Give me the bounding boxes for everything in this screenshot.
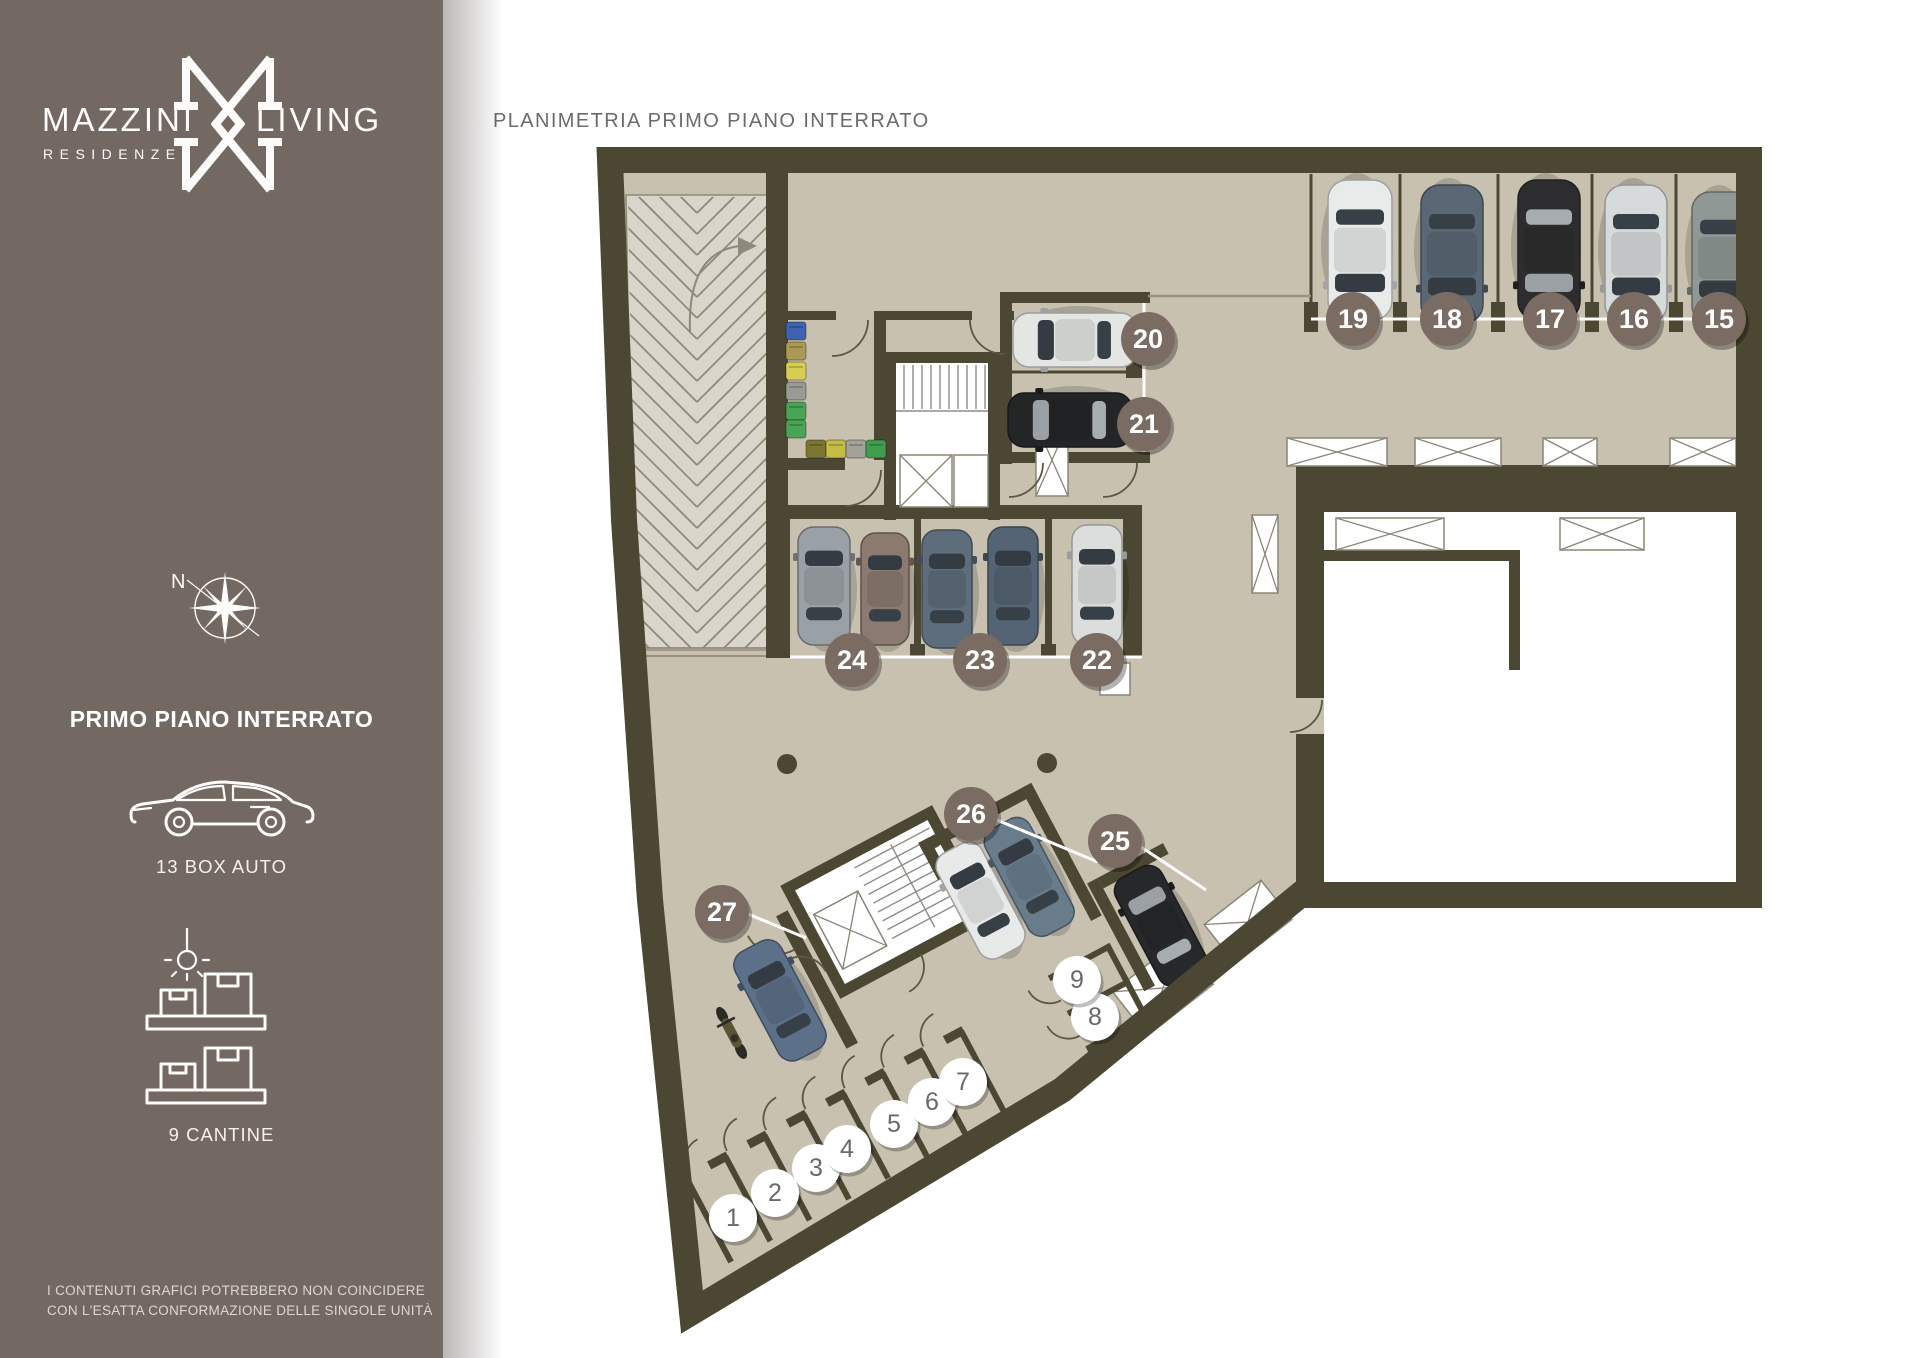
- svg-text:21: 21: [1129, 409, 1159, 439]
- car-icon: [856, 533, 916, 652]
- svg-text:15: 15: [1704, 304, 1734, 334]
- svg-text:16: 16: [1619, 304, 1649, 334]
- waste-bin-icon: [786, 402, 806, 420]
- car-icon: [793, 527, 857, 652]
- cellar-shelf-icon: [131, 928, 311, 1124]
- svg-text:24: 24: [837, 645, 867, 675]
- page-title: PLANIMETRIA PRIMO PIANO INTERRATO: [493, 110, 930, 133]
- floor-title: PRIMO PIANO INTERRATO: [0, 706, 443, 733]
- car-icon: [121, 760, 321, 850]
- svg-text:18: 18: [1432, 304, 1462, 334]
- column: [777, 754, 797, 774]
- svg-text:17: 17: [1535, 304, 1565, 334]
- car-icon: [983, 527, 1045, 652]
- disclaimer: I CONTENUTI GRAFICI POTREBBERO NON COINC…: [47, 1281, 433, 1321]
- svg-text:23: 23: [965, 645, 995, 675]
- car-icon: [1067, 525, 1129, 652]
- cantine-count: 9 CANTINE: [0, 1124, 443, 1146]
- waste-bin-icon: [786, 342, 806, 360]
- svg-text:6: 6: [925, 1088, 939, 1116]
- sidebar-shadow: [443, 0, 503, 1358]
- svg-text:1: 1: [726, 1204, 740, 1232]
- waste-bin-icon: [806, 440, 826, 458]
- svg-text:27: 27: [707, 897, 737, 927]
- svg-text:20: 20: [1133, 324, 1163, 354]
- logo-subtitle: RESIDENZE: [43, 146, 182, 162]
- waste-bin-icon: [866, 440, 886, 458]
- waste-bin-icon: [786, 322, 806, 340]
- svg-text:22: 22: [1082, 645, 1112, 675]
- svg-text:7: 7: [956, 1068, 970, 1096]
- svg-text:5: 5: [887, 1110, 901, 1138]
- compass-icon: N: [163, 558, 283, 653]
- waste-bin-icon: [786, 420, 806, 438]
- waste-bin-icon: [826, 440, 846, 458]
- waste-bin-icon: [846, 440, 866, 458]
- column: [1037, 753, 1057, 773]
- svg-text:8: 8: [1088, 1003, 1102, 1031]
- waste-bin-icon: [786, 362, 806, 380]
- svg-text:9: 9: [1070, 966, 1084, 994]
- svg-text:3: 3: [809, 1154, 823, 1182]
- page: 15161718192021222324252627123456789 MAZZ…: [0, 0, 1920, 1358]
- waste-bin-icon: [786, 382, 806, 400]
- svg-text:25: 25: [1100, 826, 1130, 856]
- svg-text:19: 19: [1338, 304, 1368, 334]
- compass-n-label: N: [171, 571, 185, 593]
- svg-text:2: 2: [768, 1179, 782, 1207]
- mazzini-monogram-icon: [172, 44, 284, 204]
- svg-text:26: 26: [956, 799, 986, 829]
- sidebar: MAZZINI LIVING RESIDENZE N: [0, 0, 443, 1358]
- box-auto-count: 13 BOX AUTO: [0, 856, 443, 878]
- svg-text:4: 4: [840, 1135, 854, 1163]
